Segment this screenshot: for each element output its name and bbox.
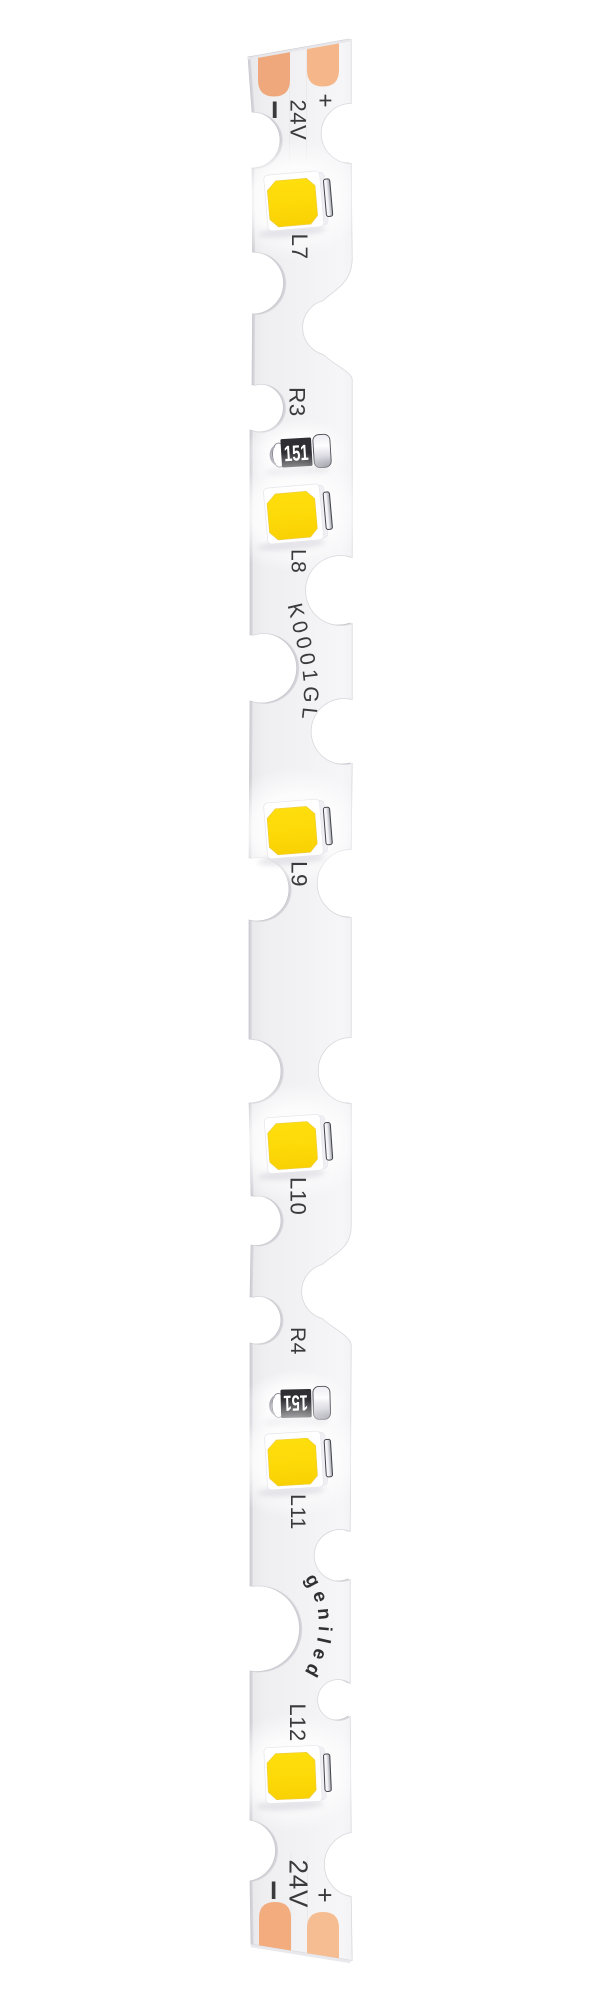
svg-text:+: +	[310, 1888, 340, 1903]
svg-text:L7: L7	[287, 234, 312, 260]
svg-text:L8: L8	[287, 549, 310, 573]
svg-text:R3: R3	[285, 387, 310, 417]
svg-text:24V: 24V	[286, 100, 311, 141]
svg-text:R4: R4	[286, 1327, 309, 1355]
svg-text:L10: L10	[286, 1177, 311, 1215]
svg-text:L12: L12	[285, 1704, 310, 1742]
svg-text:24V: 24V	[284, 1860, 314, 1909]
svg-text:+: +	[312, 94, 339, 108]
svg-text:L11: L11	[286, 1494, 310, 1530]
svg-text:L9: L9	[287, 861, 312, 887]
